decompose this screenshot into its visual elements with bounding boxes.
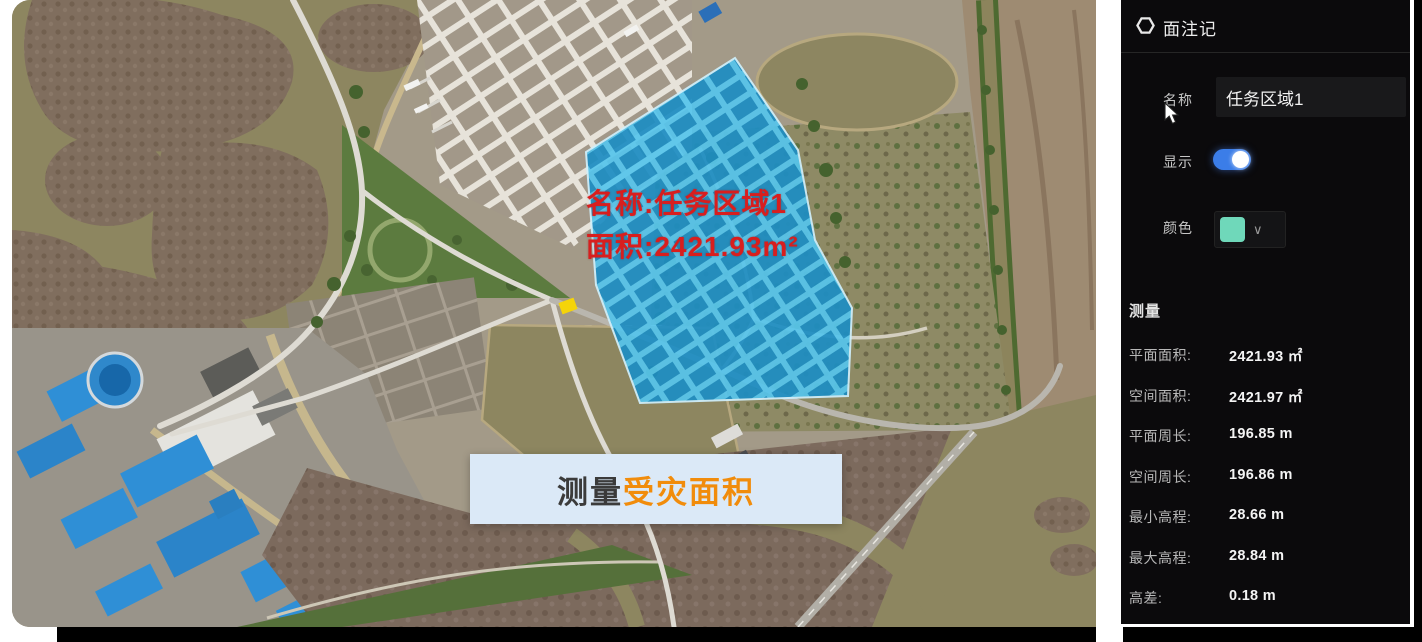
- panel-title: 面注记: [1163, 15, 1217, 40]
- right-black-bar: [1414, 0, 1422, 642]
- measure-row: 最小高程:28.66 m: [1129, 507, 1399, 529]
- panel-header: 面注记: [1121, 0, 1410, 52]
- toggle-knob: [1232, 151, 1249, 168]
- measure-value: 196.86 m: [1229, 467, 1293, 483]
- measure-label: 最小高程:: [1129, 507, 1191, 527]
- measure-row: 空间面积:2421.97 ㎡: [1129, 386, 1399, 408]
- caption-prefix: 测量: [557, 467, 623, 512]
- measure-value: 2421.93 ㎡: [1229, 345, 1303, 366]
- measure-row: 空间周长:196.86 m: [1129, 467, 1399, 489]
- annotation-area-line: 面积:2421.93m²: [586, 225, 799, 268]
- map-annotation-label: 名称:任务区域1 面积:2421.93m²: [586, 182, 799, 268]
- measure-label: 空间周长:: [1129, 467, 1191, 487]
- aerial-map: [12, 0, 1096, 627]
- annotation-name-line: 名称:任务区域1: [586, 182, 799, 225]
- measure-section-title: 测量: [1129, 300, 1161, 321]
- app-window: 名称:任务区域1 面积:2421.93m² 测量受灾面积 面注记 名称 显示 颜…: [0, 0, 1422, 642]
- measure-value: 28.66 m: [1229, 507, 1284, 523]
- color-select[interactable]: ∨: [1214, 211, 1286, 248]
- annotation-panel: 面注记 名称 显示 颜色 ∨ 测量 平面面积:2421.93 ㎡空间面积:242…: [1121, 0, 1414, 627]
- bottom-black-bar: [57, 627, 1422, 642]
- measure-row: 平面周长:196.85 m: [1129, 426, 1399, 448]
- display-toggle[interactable]: [1213, 149, 1251, 170]
- measure-row: 最大高程:28.84 m: [1129, 548, 1399, 570]
- divider: [1121, 52, 1410, 53]
- caption-banner: 测量受灾面积: [470, 454, 842, 524]
- measure-label: 高差:: [1129, 588, 1162, 608]
- measure-value: 0.18 m: [1229, 588, 1276, 604]
- measure-value: 196.85 m: [1229, 426, 1293, 442]
- measure-value: 28.84 m: [1229, 548, 1284, 564]
- chevron-down-icon: ∨: [1253, 223, 1263, 236]
- panel-gap: [1096, 627, 1123, 642]
- measure-row: 高差:0.18 m: [1129, 588, 1399, 610]
- measure-label: 空间面积:: [1129, 386, 1191, 406]
- measure-row: 平面面积:2421.93 ㎡: [1129, 345, 1399, 367]
- map-view[interactable]: 名称:任务区域1 面积:2421.93m² 测量受灾面积: [12, 0, 1096, 627]
- color-swatch: [1220, 217, 1245, 242]
- color-field-label: 颜色: [1163, 218, 1193, 238]
- measure-label: 平面面积:: [1129, 345, 1191, 365]
- display-field-label: 显示: [1163, 152, 1193, 172]
- measure-label: 最大高程:: [1129, 548, 1191, 568]
- mouse-cursor: [1164, 102, 1181, 126]
- measure-value: 2421.97 ㎡: [1229, 386, 1303, 407]
- caption-highlight: 受灾面积: [623, 467, 755, 512]
- hexagon-polygon-icon: [1136, 16, 1155, 35]
- name-input[interactable]: [1216, 77, 1406, 117]
- measure-label: 平面周长:: [1129, 426, 1191, 446]
